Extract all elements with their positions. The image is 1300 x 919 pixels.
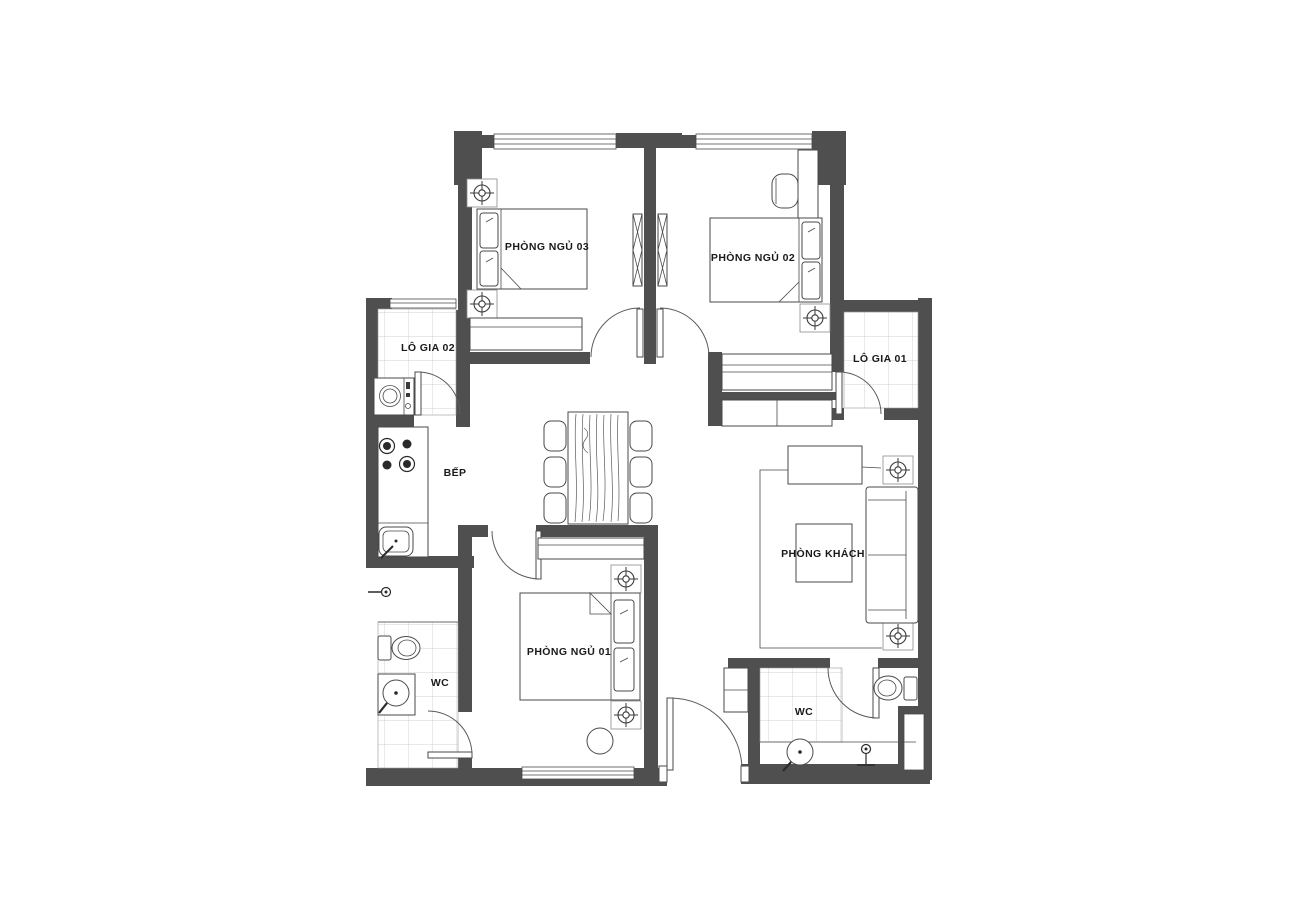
ceiling-light-icon: [883, 622, 913, 650]
wardrobe-icon: [538, 538, 644, 559]
chair-icon: [630, 457, 652, 487]
window-bedroom-01: [522, 767, 634, 779]
window-bedroom-02: [696, 134, 812, 149]
bedroom-02-furniture: [658, 150, 832, 426]
label-bedroom-03: PHÒNG NGỦ 03: [505, 240, 589, 253]
label-loggia-02: LÔ GIA 02: [401, 341, 455, 354]
window-bedroom-03: [494, 134, 616, 149]
ceiling-light-icon: [467, 179, 497, 207]
door-bedroom-03: [591, 308, 643, 357]
chair-icon: [772, 174, 798, 208]
chair-icon: [630, 493, 652, 523]
dining-table-icon: [568, 412, 628, 524]
tv-cabinet-icon: [788, 446, 862, 484]
sliding-wardrobe-icon: [633, 214, 642, 286]
loggia-02-furniture: [374, 378, 414, 415]
ceiling-light-icon: [611, 565, 641, 593]
label-kitchen: BẾP: [444, 466, 467, 479]
washing-machine-icon: [374, 378, 414, 415]
bench-cabinet-icon: [722, 354, 832, 390]
kitchen-sink-icon: [379, 527, 413, 558]
door-bedroom-02: [657, 308, 709, 357]
hall-cabinet-icon: [724, 668, 748, 712]
floor-plan: PHÒNG NGỦ 03 PHÒNG NGỦ 02 LÔ GIA 02 LÔ G…: [0, 0, 1300, 919]
dining-furniture: [544, 412, 652, 524]
label-loggia-01: LÔ GIA 01: [853, 352, 907, 365]
label-bedroom-02: PHÒNG NGỦ 02: [711, 251, 795, 264]
label-wc-left: WC: [431, 677, 449, 689]
stool-icon: [587, 728, 613, 754]
label-bedroom-01: PHÒNG NGỦ 01: [527, 645, 611, 658]
window-loggia-02-railing: [390, 299, 456, 308]
toilet-icon: [378, 636, 420, 660]
basin-icon: [378, 674, 415, 715]
chair-icon: [544, 457, 566, 487]
kitchen-furniture: [378, 427, 428, 558]
bedroom-03-furniture: [467, 179, 642, 350]
toilet-icon: [874, 676, 917, 700]
wardrobe-icon: [470, 318, 582, 350]
chair-icon: [544, 493, 566, 523]
shower-icon: [368, 588, 391, 597]
door-bedroom-01: [492, 531, 541, 579]
label-wc-right: WC: [795, 706, 813, 718]
wc-right-floor: [760, 668, 842, 742]
floor-plan-canvas: PHÒNG NGỦ 03 PHÒNG NGỦ 02 LÔ GIA 02 LÔ G…: [0, 0, 1300, 919]
ceiling-light-icon: [611, 701, 641, 729]
sliding-wardrobe-icon: [658, 214, 667, 286]
shower-icon: [857, 745, 875, 766]
sofa-icon: [866, 487, 918, 623]
label-living-room: PHÒNG KHÁCH: [781, 547, 865, 560]
chair-icon: [544, 421, 566, 451]
ceiling-light-icon: [467, 290, 497, 318]
ceiling-light-icon: [800, 304, 830, 332]
desk-icon: [798, 150, 818, 220]
ceiling-light-icon: [883, 456, 913, 484]
wc-left-fixtures: [368, 588, 420, 716]
shoe-cabinet-icon: [722, 400, 832, 426]
chair-icon: [630, 421, 652, 451]
